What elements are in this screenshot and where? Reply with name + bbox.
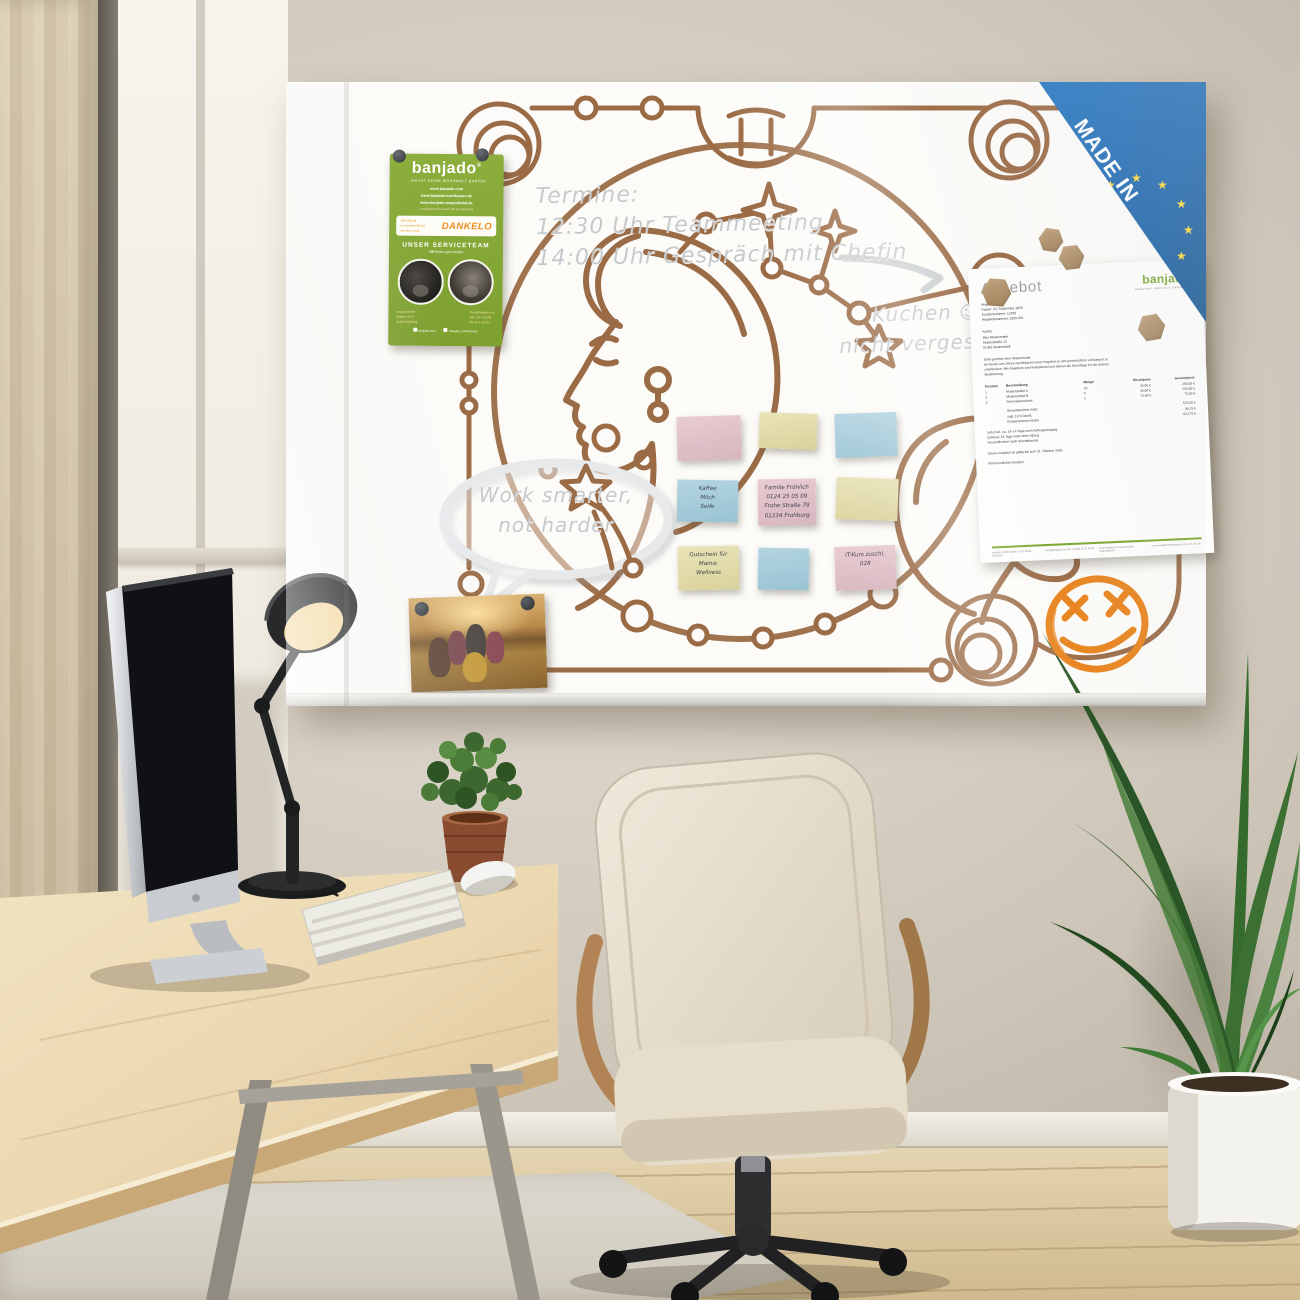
gemini-glyph-icon: [729, 110, 783, 164]
instagram-icon: [444, 328, 448, 332]
moon-phase-top-right: [971, 102, 1047, 178]
promo-code: DANKELO: [442, 221, 493, 232]
magnet-dot-icon: [476, 148, 489, 161]
sticky-note: KaffeeMilchSeife: [677, 479, 739, 522]
orange-smiley-doodle: [1031, 566, 1176, 684]
plant-pot: [1168, 1072, 1300, 1242]
flyer-service-sub: hilft Ihnen gern weiter: [394, 250, 498, 255]
chair-seat: [612, 1034, 910, 1167]
dog-photo: [448, 259, 494, 305]
flyer-url-note: versandkostenfrei innerhalb Deutschlands: [394, 207, 498, 212]
flyer-service-title: UNSER SERVICETEAM: [394, 242, 498, 250]
magnetic-glass-whiteboard: Termine: 12:30 Uhr Teammeeting 14:00 Uhr…: [286, 82, 1206, 706]
dog-photo: [398, 259, 444, 305]
office-chair: [555, 742, 965, 1300]
termine-line: 14:00 Uhr Gespräch mit Chefin: [536, 237, 907, 275]
flyer-contacts: banjado GmbHWaldstr. 5b 0701454 Radeberg…: [393, 310, 497, 325]
sticky-note: [758, 548, 810, 591]
kuchen-text: Kuchen: [872, 300, 953, 327]
eu-star-icon: ★: [1176, 198, 1187, 210]
eu-star-icon: ★: [1176, 250, 1187, 262]
sticky-note: IT-Kurs zuschl.028: [834, 545, 896, 591]
sticky-note: [758, 412, 817, 450]
doc-meta: AngebotDatum: 23. September 2025 Kundenn…: [981, 294, 1192, 324]
sticky-note: Familie Fröhlich0124 25 05 09Frohe Straß…: [758, 478, 817, 525]
eu-star-icon: ★: [1157, 179, 1168, 191]
board-bottom-edge: [286, 693, 1206, 706]
flyer-social: banjado.com banjado_onlineshops: [393, 327, 497, 333]
speech-bubble-text: Work smarter, not harder: [444, 480, 668, 540]
photo-person: [486, 631, 505, 664]
sticky-note: [834, 412, 897, 458]
eu-star-icon: ★: [1131, 172, 1142, 184]
flyer-promo-box: 10% Rabatt in unserem Shops mit dem Code…: [396, 216, 496, 237]
family-photo: [408, 594, 547, 693]
magnet-dot-icon: [393, 150, 406, 163]
sticky-note: [676, 415, 741, 461]
flyer-dog-photos: [394, 259, 498, 306]
banjado-flyer: banjado® ...MACHT DEINE WOHNWELT BUNTER …: [388, 154, 504, 347]
magnet-dot-icon: [415, 602, 429, 616]
sticky-note: Gutschein fürMama:Wellness: [678, 545, 740, 590]
flyer-tagline: ...MACHT DEINE WOHNWELT BUNTER: [395, 179, 499, 184]
home-office-scene: Termine: 12:30 Uhr Teammeeting 14:00 Uhr…: [0, 0, 1300, 1300]
apple-logo-icon: [192, 894, 200, 902]
sticky-note: [835, 477, 898, 521]
facebook-icon: [413, 327, 417, 331]
desk: [0, 864, 558, 1300]
eu-star-icon: ★: [1183, 224, 1194, 236]
flyer-urls: www.banjado.comwww.banjado-briefkasten.d…: [394, 186, 498, 207]
flyer-logo: banjado®: [395, 161, 499, 178]
magnet-dot-icon: [520, 596, 534, 610]
handwritten-schedule: Termine: 12:30 Uhr Teammeeting 14:00 Uhr…: [535, 175, 907, 275]
angebot-document: Angebot banjado banjado GmbH · Waldstr. …: [968, 259, 1215, 563]
doc-intro: Sehr geehrter Herr Mustermann,wir freuen…: [984, 348, 1195, 378]
photo-person: [462, 652, 487, 683]
